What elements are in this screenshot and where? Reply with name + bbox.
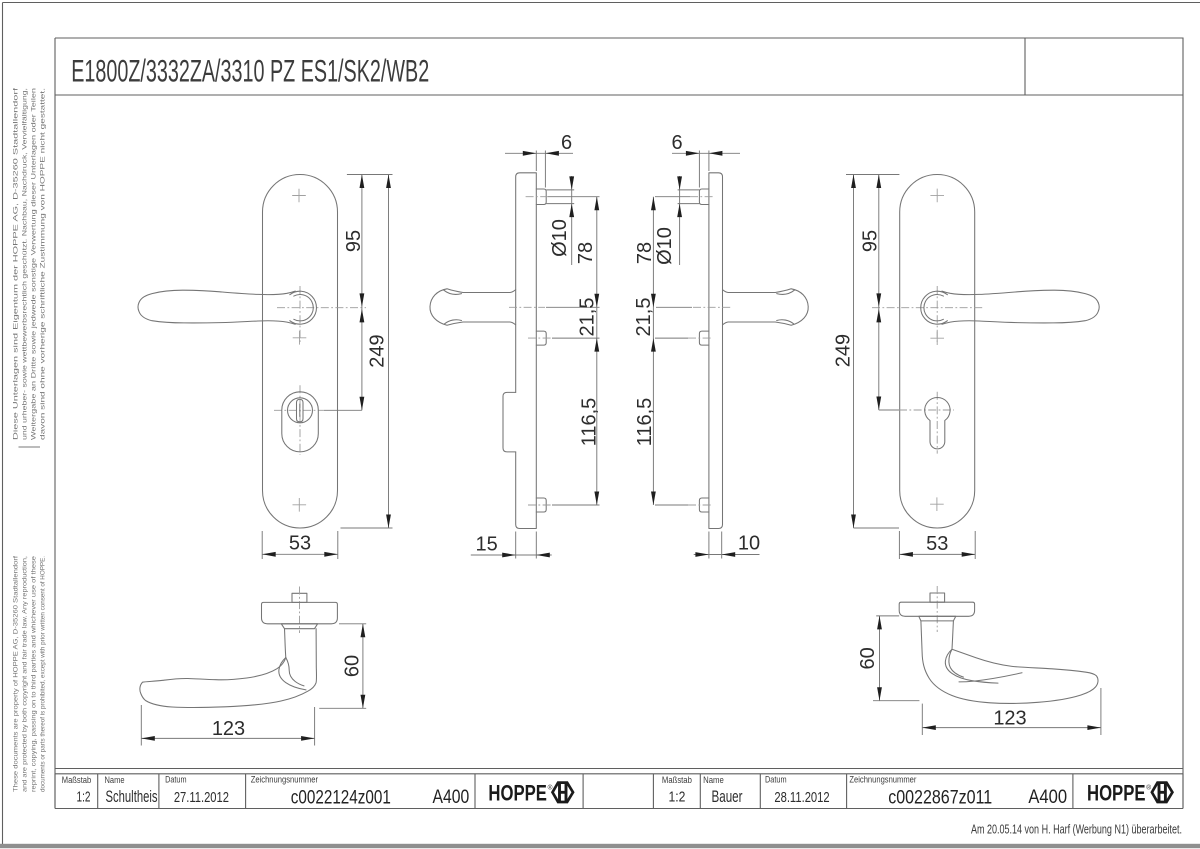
svg-text:Ø10: Ø10	[654, 227, 676, 265]
svg-text:Schultheis: Schultheis	[106, 788, 158, 806]
svg-text:documents or parts thereof is: documents or parts thereof is prohibited…	[40, 556, 47, 792]
svg-text:116,5: 116,5	[579, 398, 601, 447]
svg-text:123: 123	[993, 708, 1026, 730]
svg-text:und urheber- sowie wettbewerbs: und urheber- sowie wettbewerbsrechtlich …	[22, 88, 29, 440]
svg-text:27.11.2012: 27.11.2012	[174, 789, 229, 806]
svg-text:249: 249	[833, 334, 855, 367]
svg-text:Name: Name	[105, 775, 125, 785]
svg-text:Ø10: Ø10	[549, 219, 571, 257]
svg-text:Bauer: Bauer	[712, 788, 743, 806]
svg-text:reprint, copying, passing on t: reprint, copying, passing on to third pa…	[31, 556, 38, 792]
svg-text:These documents are property o: These documents are property of HOPPE AG…	[13, 556, 20, 792]
svg-text:116,5: 116,5	[634, 398, 656, 447]
svg-text:Name: Name	[703, 775, 724, 785]
svg-text:123: 123	[212, 718, 245, 740]
svg-text:15: 15	[475, 534, 497, 556]
svg-text:60: 60	[342, 655, 364, 677]
svg-text:60: 60	[857, 647, 879, 669]
svg-text:6: 6	[671, 132, 682, 154]
svg-text:21,5: 21,5	[577, 298, 599, 337]
svg-text:Zeichnungsnummer: Zeichnungsnummer	[251, 775, 318, 785]
svg-text:95: 95	[343, 230, 365, 252]
svg-text:78: 78	[634, 242, 656, 264]
svg-text:®: ®	[548, 784, 553, 792]
svg-text:Datum: Datum	[765, 775, 787, 785]
svg-text:Maßstab: Maßstab	[62, 775, 91, 785]
svg-text:249: 249	[367, 334, 389, 367]
svg-text:1:2: 1:2	[668, 789, 685, 806]
svg-text:E1800Z/3332ZA/3310 PZ ES1/SK2/: E1800Z/3332ZA/3310 PZ ES1/SK2/WB2	[71, 52, 429, 88]
svg-text:®: ®	[1146, 784, 1151, 792]
svg-text:HOPPE: HOPPE	[488, 780, 547, 805]
svg-text:HOPPE: HOPPE	[1087, 780, 1146, 805]
svg-text:Maßstab: Maßstab	[662, 775, 692, 785]
svg-text:Weitergabe an Dritte sowie jed: Weitergabe an Dritte sowie jedwede sonst…	[31, 87, 38, 440]
svg-text:10: 10	[738, 533, 760, 555]
svg-text:davon sind ohne vorherige schr: davon sind ohne vorherige schriftliche Z…	[40, 88, 47, 440]
svg-text:21,5: 21,5	[633, 298, 655, 337]
svg-text:53: 53	[926, 533, 948, 555]
svg-text:28.11.2012: 28.11.2012	[774, 789, 829, 806]
svg-text:53: 53	[289, 533, 311, 555]
svg-text:78: 78	[575, 242, 597, 264]
svg-text:Datum: Datum	[165, 775, 186, 785]
svg-text:1:2: 1:2	[77, 789, 91, 806]
svg-text:A400: A400	[433, 786, 470, 808]
svg-text:6: 6	[561, 132, 572, 154]
svg-text:and are protected by both copy: and are protected by both copyright and …	[22, 556, 29, 792]
svg-text:Am 20.05.14 von H. Harf (Werbu: Am 20.05.14 von H. Harf (Werbung N1) übe…	[971, 823, 1182, 837]
svg-text:Zeichnungsnummer: Zeichnungsnummer	[849, 775, 916, 785]
svg-text:A400: A400	[1028, 786, 1067, 808]
svg-text:95: 95	[860, 230, 882, 252]
svg-text:Diese Unterlagen sind Eigentum: Diese Unterlagen sind Eigentum der HOPPE…	[13, 88, 20, 440]
svg-text:c0022124z001: c0022124z001	[291, 787, 391, 809]
svg-text:c0022867z011: c0022867z011	[888, 787, 992, 809]
